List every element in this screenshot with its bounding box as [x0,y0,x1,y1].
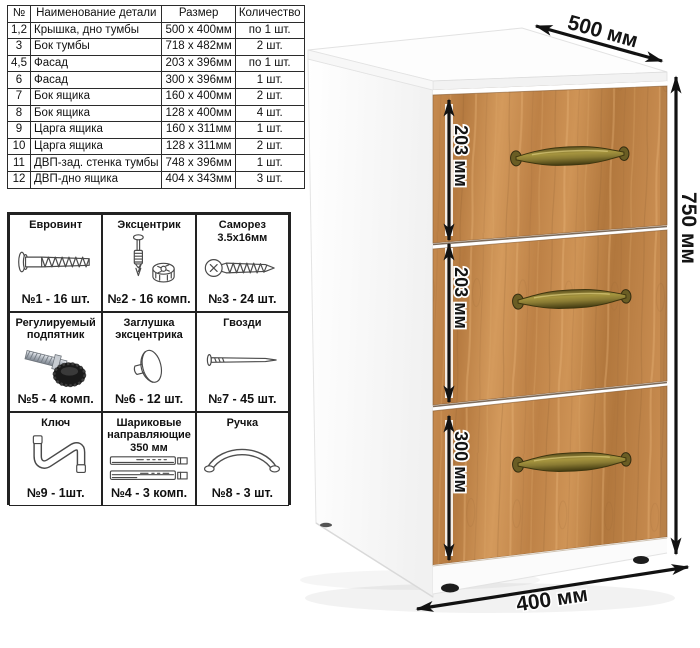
hardware-title: Эксцентрик [117,219,180,232]
confirmat-screw-icon [15,232,97,292]
part-cell: 10 [8,138,31,155]
part-cell: 160 x 311мм [162,122,235,139]
table-row: 12 ДВП-дно ящика 404 x 343мм 3 шт. [8,171,305,188]
hardware-title: Саморез 3.5х16мм [199,219,286,244]
part-cell: Бок ящика [31,105,162,122]
part-cell: 500 x 400мм [162,22,235,39]
cam-lock-icon [118,232,180,292]
hardware-title: Заглушка эксцентрика [105,317,192,342]
nail-icon [203,329,281,392]
hardware-count: №8 - 3 шт. [212,486,273,500]
parts-table-header-row: № Наименование детали Размер Количество [8,6,305,23]
hardware-title: Гвозди [223,317,261,330]
part-cell: 128 x 311мм [162,138,235,155]
hardware-count: №9 - 1шт. [27,486,85,500]
hardware-cell-cam-lock: Эксцентрик №2 - 16 комп. [102,214,195,312]
part-cell: Крышка, дно тумбы [31,22,162,39]
part-cell: Царга ящика [31,138,162,155]
hardware-count: №3 - 24 шт. [208,292,276,306]
hardware-count: №5 - 4 комп. [18,392,94,406]
parts-table: № Наименование детали Размер Количество … [7,5,305,189]
self-tapping-screw-icon [203,244,281,292]
hardware-cell-key: Ключ №9 - 1шт. [9,412,102,507]
part-cell: 128 x 400мм [162,105,235,122]
part-cell: 748 x 396мм [162,155,235,172]
hardware-cell-selftapping-screw: Саморез 3.5х16мм №3 - 24 шт. [196,214,289,312]
part-cell: 1,2 [8,22,31,39]
hardware-title: Евровинт [29,219,82,232]
hardware-title: Ключ [41,417,70,430]
part-cell: Бок тумбы [31,39,162,56]
ball-bearing-slides-icon [107,454,191,486]
part-cell: Бок ящика [31,88,162,105]
table-row: 3 Бок тумбы 718 x 482мм 2 шт. [8,39,305,56]
dim-drawer3-label: 300 мм [451,431,471,493]
table-row: 4,5 Фасад 203 x 396мм по 1 шт. [8,55,305,72]
hardware-grid: Евровинт №1 - 16 шт. Эксцентрик [7,212,291,505]
table-row: 1,2 Крышка, дно тумбы 500 x 400мм по 1 ш… [8,22,305,39]
cabinet-illustration: 500 мм 750 мм 400 мм 203 мм 203 мм 300 м… [290,0,700,648]
part-cell: 203 x 396мм [162,55,235,72]
table-row: 8 Бок ящика 128 x 400мм 4 шт. [8,105,305,122]
part-cell: 8 [8,105,31,122]
cabinet-foot [320,523,332,527]
part-cell: 300 x 396мм [162,72,235,89]
hardware-title: Ручка [227,417,258,430]
header-name: Наименование детали [31,6,162,23]
part-cell: 7 [8,88,31,105]
cabinet-body [308,28,667,597]
part-cell: 9 [8,122,31,139]
handle-icon [202,429,282,486]
cabinet-foot [633,556,649,564]
hardware-count: №2 - 16 комп. [107,292,190,306]
hardware-count: №6 - 12 шт. [115,392,183,406]
part-cell: 11 [8,155,31,172]
part-cell: 12 [8,171,31,188]
part-cell: 3 [8,39,31,56]
table-row: 7 Бок ящика 160 x 400мм 2 шт. [8,88,305,105]
cabinet-foot [441,584,459,593]
part-cell: 404 x 343мм [162,171,235,188]
hex-key-icon [21,429,91,486]
hardware-cell-nails: Гвозди №7 - 45 шт. [196,312,289,412]
hardware-cell-cam-cap: Заглушка эксцентрика №6 - 12 шт. [102,312,195,412]
part-cell: Фасад [31,55,162,72]
cam-cap-icon [126,342,172,392]
hardware-cell-handle: Ручка №8 - 3 шт. [196,412,289,507]
hardware-count: №1 - 16 шт. [22,292,90,306]
part-cell: ДВП-дно ящика [31,171,162,188]
dim-drawer1-label: 203 мм [451,125,471,187]
hardware-cell-adjustable-foot: Регулируемый подпятник №5 - 4 [9,312,102,412]
dim-drawer2-label: 203 мм [451,267,471,329]
part-cell: Фасад [31,72,162,89]
part-cell: ДВП-зад. стенка тумбы [31,155,162,172]
part-cell: 4,5 [8,55,31,72]
header-num: № [8,6,31,23]
hardware-cell-euroscrew: Евровинт №1 - 16 шт. [9,214,102,312]
dimension-height: 750 мм [676,77,700,554]
part-cell: Царга ящика [31,122,162,139]
hardware-title: Шариковые направляющие 350 мм [105,417,192,455]
hardware-title: Регулируемый подпятник [12,317,99,342]
side-panel [308,59,433,597]
adjustable-foot-icon [21,342,91,392]
hardware-cell-ball-slides: Шариковые направляющие 350 мм №4 - 3 ком… [102,412,195,507]
hardware-count: №7 - 45 шт. [208,392,276,406]
hardware-count: №4 - 3 комп. [111,486,187,500]
table-row: 6 Фасад 300 x 396мм 1 шт. [8,72,305,89]
part-cell: 160 x 400мм [162,88,235,105]
part-cell: 6 [8,72,31,89]
table-row: 10 Царга ящика 128 x 311мм 2 шт. [8,138,305,155]
part-cell: 718 x 482мм [162,39,235,56]
table-row: 9 Царга ящика 160 x 311мм 1 шт. [8,122,305,139]
dim-height-label: 750 мм [677,192,700,264]
header-size: Размер [162,6,235,23]
table-row: 11 ДВП-зад. стенка тумбы 748 x 396мм 1 ш… [8,155,305,172]
